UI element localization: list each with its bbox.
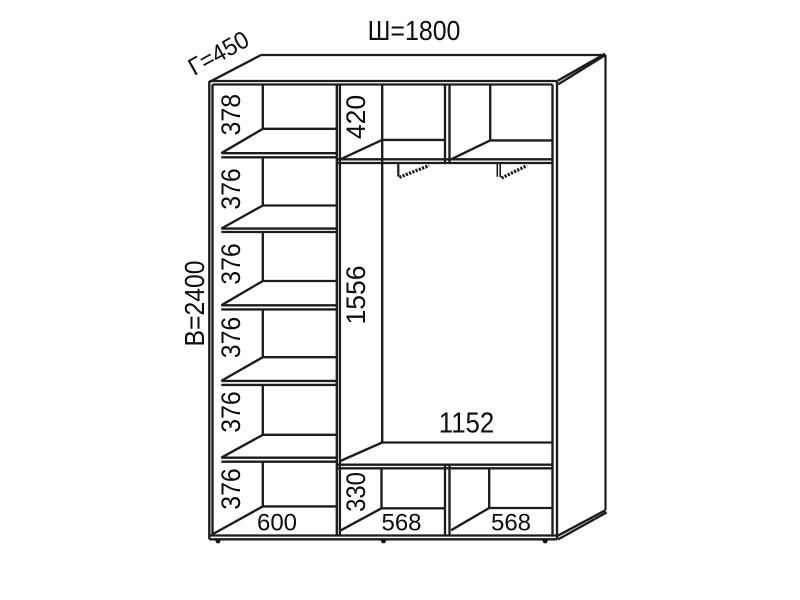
svg-text:376: 376 bbox=[217, 168, 246, 210]
svg-text:Г=450: Г=450 bbox=[184, 26, 254, 82]
svg-text:420: 420 bbox=[341, 95, 371, 139]
svg-text:568: 568 bbox=[491, 510, 531, 537]
svg-text:1152: 1152 bbox=[439, 406, 494, 439]
svg-text:330: 330 bbox=[342, 472, 371, 512]
svg-text:568: 568 bbox=[381, 510, 421, 537]
svg-text:1556: 1556 bbox=[341, 266, 371, 325]
svg-text:376: 376 bbox=[217, 317, 246, 359]
svg-text:600: 600 bbox=[257, 510, 297, 537]
svg-text:В=2400: В=2400 bbox=[179, 260, 211, 346]
svg-text:376: 376 bbox=[217, 468, 246, 510]
svg-text:376: 376 bbox=[217, 391, 246, 433]
svg-text:Ш=1800: Ш=1800 bbox=[368, 15, 461, 47]
svg-text:378: 378 bbox=[217, 94, 246, 136]
svg-text:376: 376 bbox=[217, 243, 246, 285]
